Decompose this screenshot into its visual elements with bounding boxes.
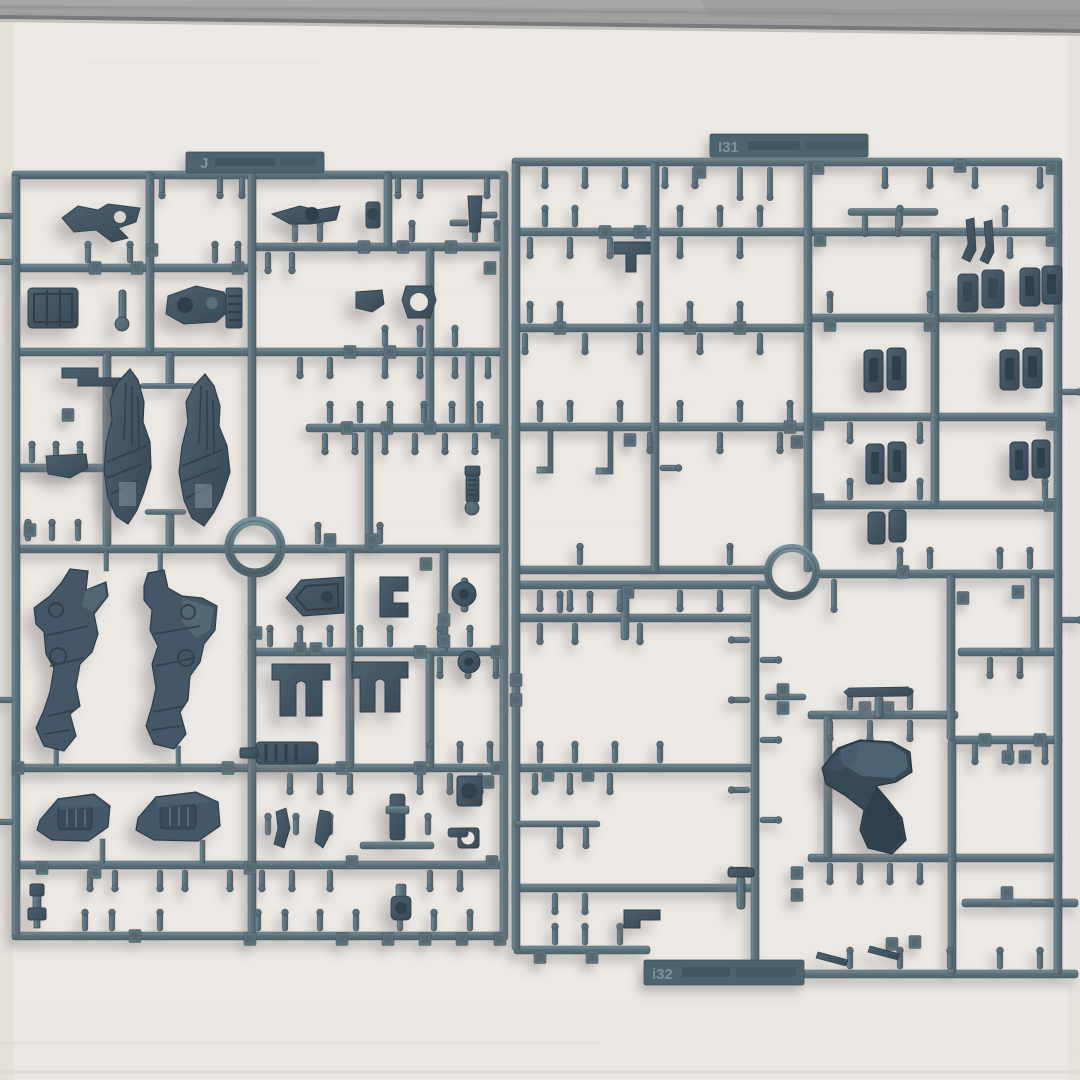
svg-text:J: J	[200, 155, 208, 172]
svg-text:i32: i32	[652, 966, 673, 983]
svg-text:I31: I31	[718, 139, 739, 156]
